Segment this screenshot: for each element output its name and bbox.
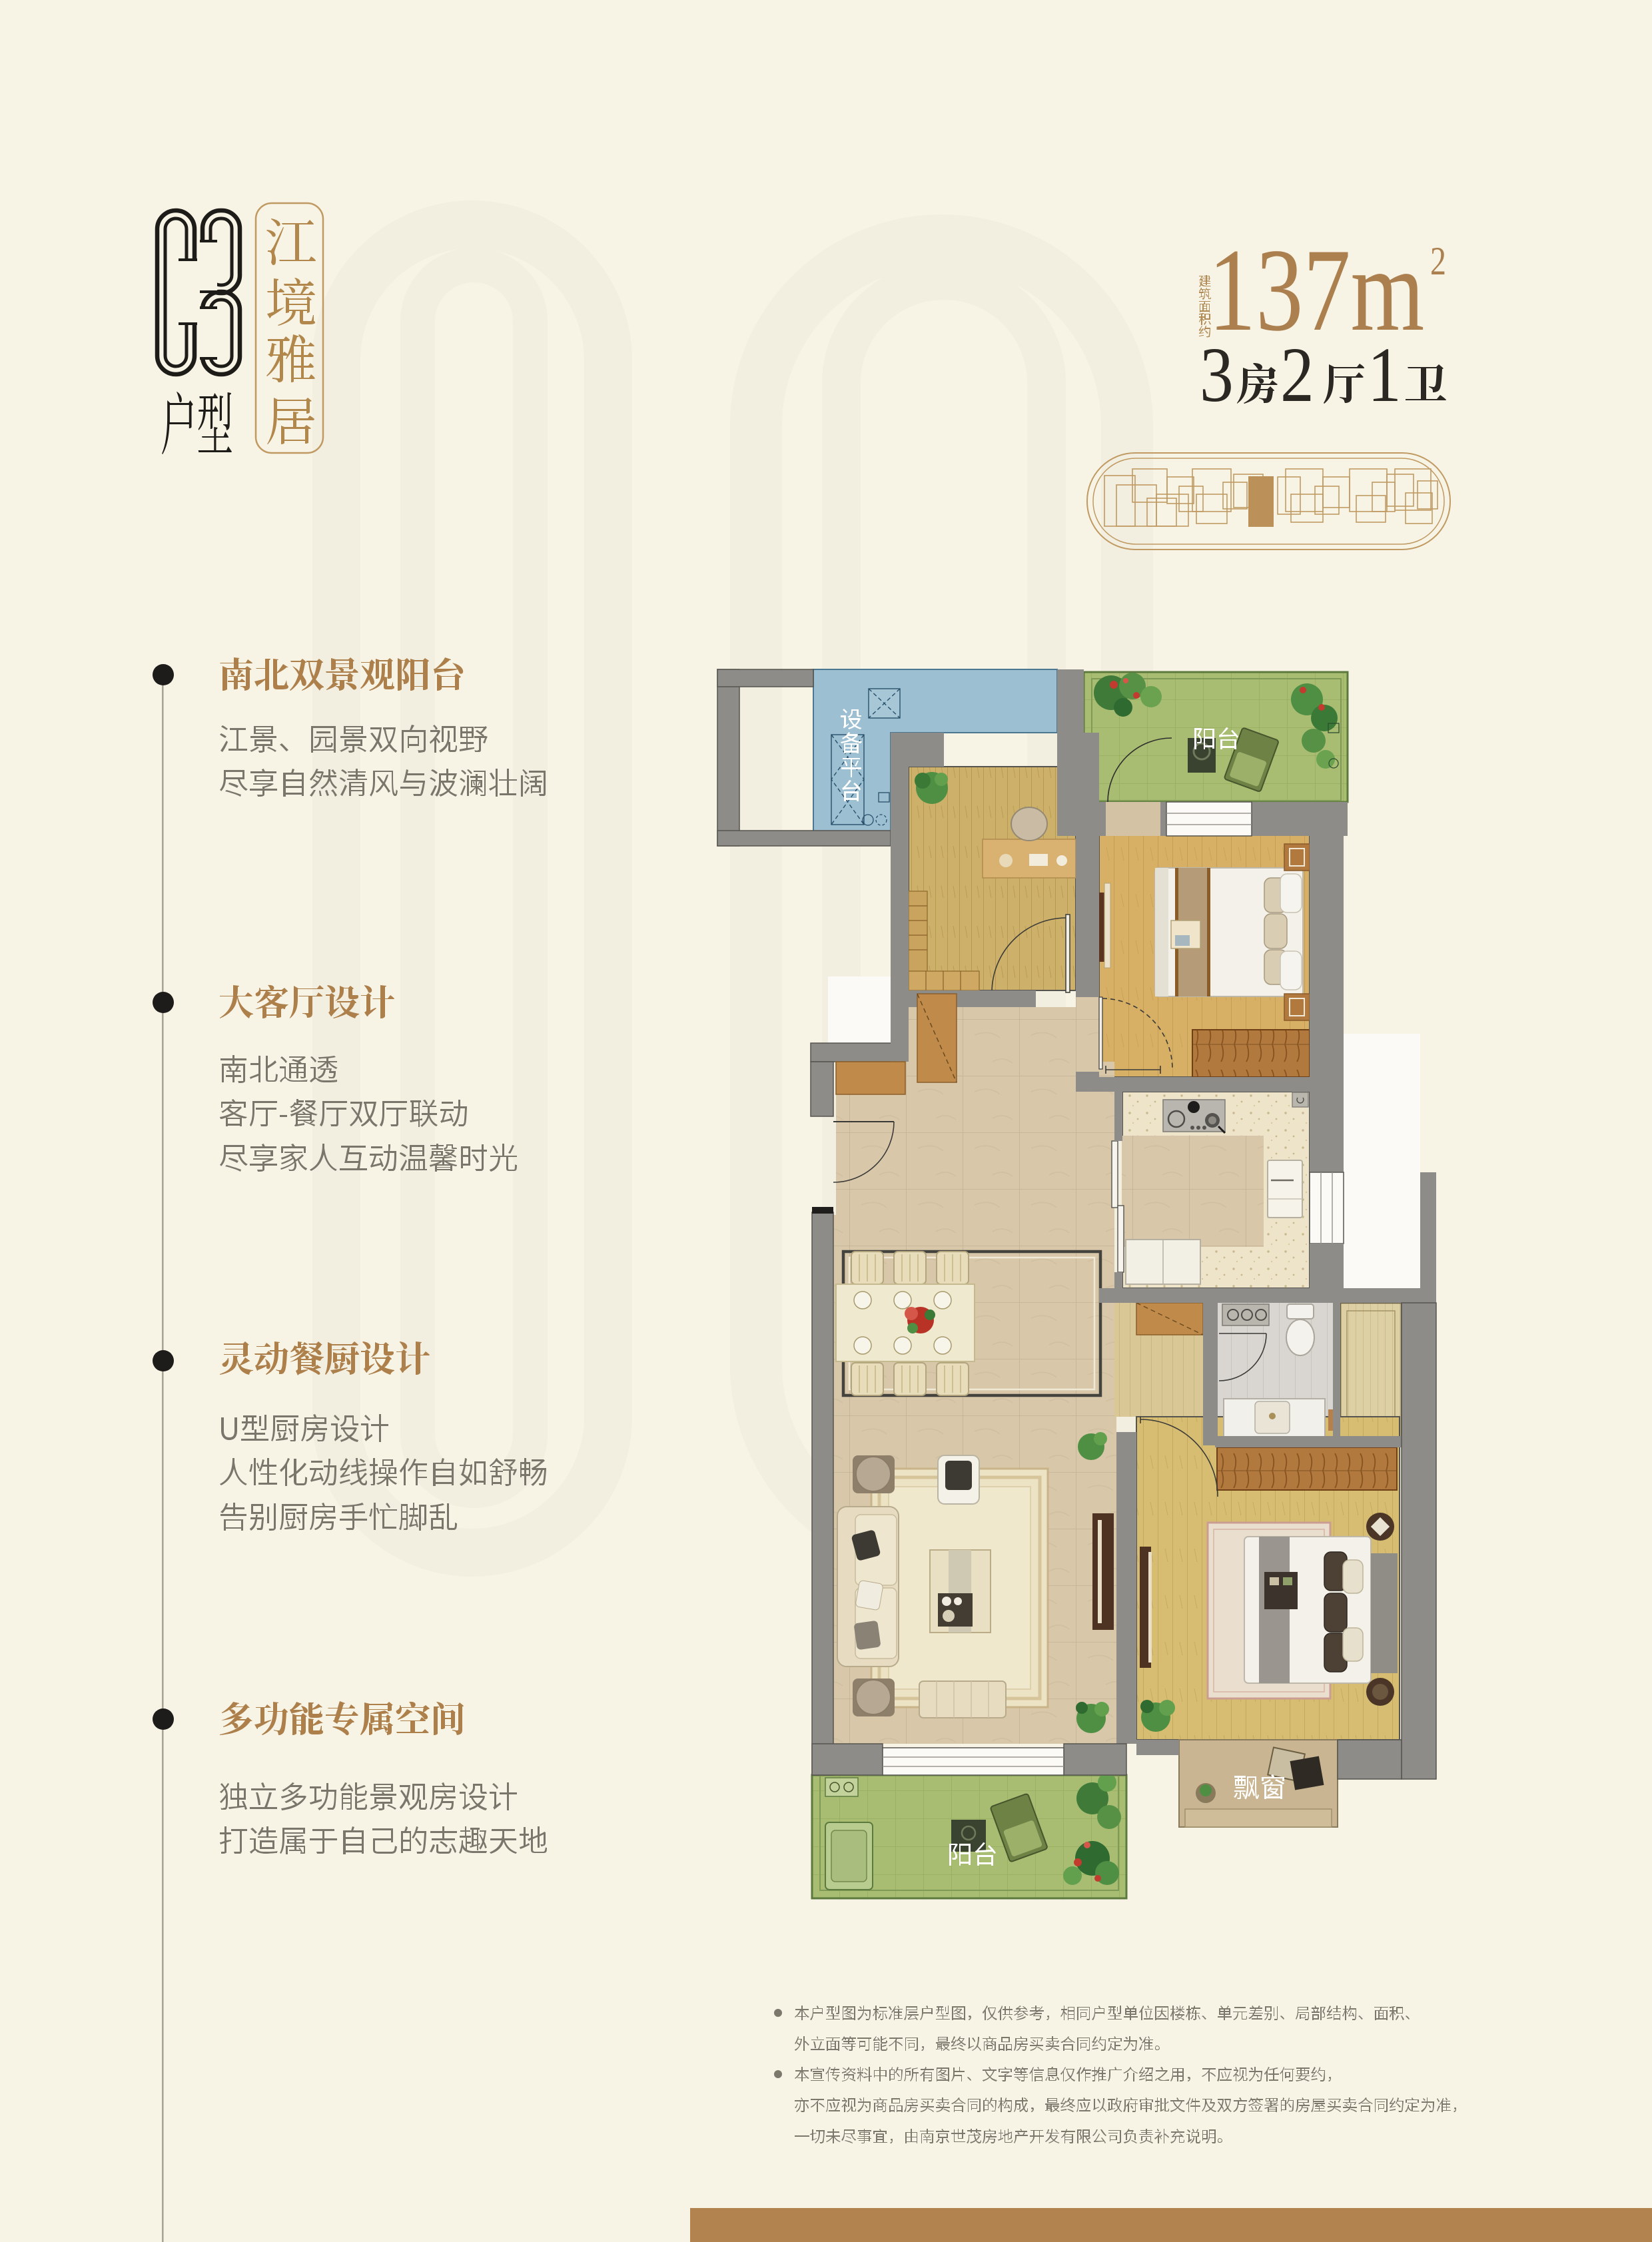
- svg-text:2: 2: [1430, 239, 1446, 283]
- svg-text:1: 1: [1368, 331, 1402, 418]
- svg-text:3: 3: [1200, 331, 1234, 418]
- svg-text:2: 2: [1280, 331, 1314, 418]
